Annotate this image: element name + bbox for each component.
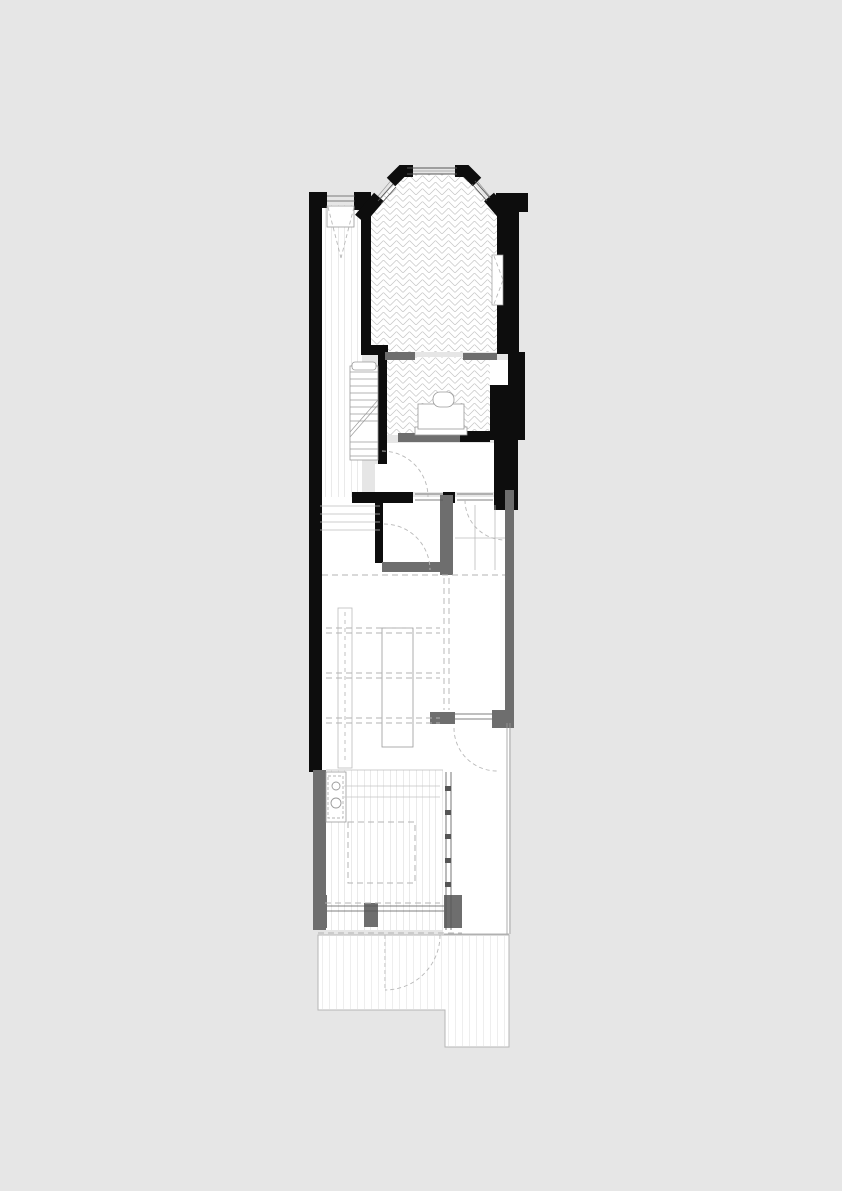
newwall-divider-left xyxy=(385,352,415,360)
screen-mullion xyxy=(445,858,451,863)
stair-newel xyxy=(352,362,376,370)
stair-body xyxy=(350,366,378,460)
screen-mullion xyxy=(445,786,451,791)
wall-front-left-corner xyxy=(309,192,327,208)
newwall-right-outer xyxy=(505,490,514,723)
newwall-mid-pier xyxy=(430,712,455,724)
drawing-sheet xyxy=(0,0,842,1191)
kitchen-island xyxy=(382,628,413,747)
screen-mullion xyxy=(445,810,451,815)
newwall-utility-bottom xyxy=(382,562,440,572)
wall-rear-partition xyxy=(378,352,387,464)
newwall-right-pier xyxy=(492,710,514,728)
front-room-parquet xyxy=(371,174,497,352)
wall-middle-left-stub xyxy=(375,495,383,563)
hall-doorway-gap xyxy=(375,464,385,495)
newwall-utility-vertical xyxy=(440,495,453,575)
floor-plan xyxy=(0,0,842,1191)
chimney-alcove-recess xyxy=(492,255,503,305)
glazing-pier-mid xyxy=(364,903,378,927)
wall-left-outer xyxy=(309,192,322,772)
glazing-pier-right xyxy=(444,895,462,928)
screen-mullion xyxy=(445,882,451,887)
sofa-body xyxy=(418,404,464,429)
wall-front-right-corner xyxy=(496,193,528,212)
chimney-alcove-floor xyxy=(490,360,508,385)
patio-deck-boards xyxy=(318,935,509,1047)
screen-mullion xyxy=(445,834,451,839)
newwall-divider-right xyxy=(463,353,497,360)
middle-room-floor xyxy=(384,443,494,492)
sofa-back-cushion xyxy=(433,392,454,407)
glazing-pier-left xyxy=(313,895,327,928)
